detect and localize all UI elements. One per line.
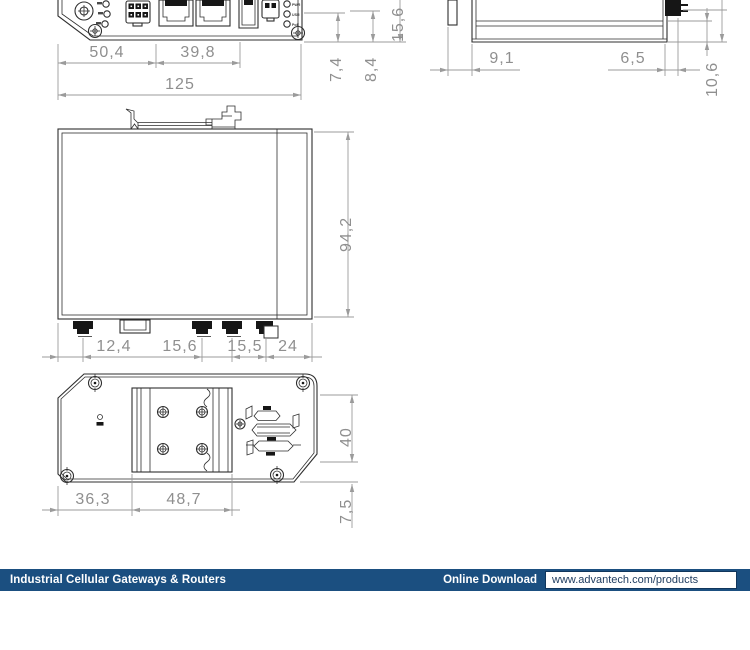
bracket-screw-4 xyxy=(197,444,208,455)
gland-top xyxy=(254,411,280,421)
dim-front-v1: 7,4 xyxy=(328,57,345,82)
bottom-molded-details xyxy=(235,406,301,456)
footer-url[interactable]: www.advantech.com/products xyxy=(546,574,698,586)
gland-mid xyxy=(252,424,296,436)
dim-front-v3: 15,6 xyxy=(390,7,407,42)
ethernet-port-2 xyxy=(196,0,230,26)
dim-side-height: 10,6 xyxy=(704,62,721,97)
din-spring-clip xyxy=(204,389,210,471)
catalog-page: PWR USR PoE 50,4 39,8 125 xyxy=(0,0,750,650)
dim-top-depth: 94,2 xyxy=(338,217,355,252)
bottom-outline-inner xyxy=(61,377,314,479)
small-screw xyxy=(235,419,245,429)
corner-screw-br xyxy=(271,466,284,484)
gland-bottom xyxy=(246,441,301,451)
footer-bar: Industrial Cellular Gateways & Routers O… xyxy=(0,569,750,591)
ethernet-port-1 xyxy=(159,0,193,26)
dim-top-c3: 15,5 xyxy=(227,338,262,355)
sma-connector-left xyxy=(75,2,93,20)
antenna-connector-4 xyxy=(256,321,278,338)
din-clip-plate xyxy=(448,0,457,25)
led-label-mark xyxy=(96,22,101,24)
din-clip-profile xyxy=(126,106,241,129)
panel-screw-right xyxy=(292,27,305,40)
grounding-point xyxy=(97,415,104,426)
footer-url-box[interactable]: www.advantech.com/products xyxy=(545,571,737,589)
panel-screw-left xyxy=(89,25,102,38)
dim-front-left: 50,4 xyxy=(89,44,124,61)
top-outline-inner xyxy=(62,133,307,315)
led-label-mark xyxy=(98,12,103,14)
side-view: 9,1 6,5 10,6 xyxy=(430,0,727,97)
antenna-connector-2 xyxy=(192,321,212,337)
bottom-outline xyxy=(58,374,317,482)
dim-front-mid: 39,8 xyxy=(180,44,215,61)
led-label-usr: USR xyxy=(292,13,300,17)
side-detail-lines xyxy=(472,0,667,39)
dim-bottom-edge: 7,5 xyxy=(338,499,355,524)
bracket-screw-3 xyxy=(158,444,169,455)
dim-top-c4: 24 xyxy=(278,338,298,355)
antenna-connector-1 xyxy=(73,321,93,337)
bracket-screw-1 xyxy=(158,407,169,418)
dimension-drawing: PWR USR PoE 50,4 39,8 125 xyxy=(0,0,750,562)
dim-front-total: 125 xyxy=(165,76,195,93)
antenna-connector-3 xyxy=(222,321,242,337)
dim-bottom-din-w: 48,7 xyxy=(166,491,201,508)
bracket-screw-2 xyxy=(197,407,208,418)
aux-connector xyxy=(262,0,279,21)
din-rail-bracket xyxy=(132,388,232,472)
dim-top-c2: 15,6 xyxy=(162,338,197,355)
led-cluster-right: PWR USR PoE xyxy=(284,1,301,27)
dim-side-clip: 9,1 xyxy=(489,50,514,67)
top-outline xyxy=(58,129,312,319)
footer-category-label: Industrial Cellular Gateways & Routers xyxy=(10,574,226,586)
dim-bottom-left: 36,3 xyxy=(75,491,110,508)
dim-front-v2: 8,4 xyxy=(363,57,380,82)
dim-bottom-din-h: 40 xyxy=(338,427,355,447)
dim-top-c1: 12,4 xyxy=(96,338,131,355)
power-connector xyxy=(126,1,150,26)
dim-side-right: 6,5 xyxy=(620,50,645,67)
side-rear-connector xyxy=(665,0,688,16)
top-view: 94,2 12,4 15,6 15,5 24 xyxy=(42,106,355,362)
sim-slot xyxy=(120,320,150,333)
led-cluster-left xyxy=(96,1,110,27)
led-label-pwr: PWR xyxy=(292,3,301,7)
din-clip-tab xyxy=(264,326,278,338)
side-view-dimensions: 9,1 6,5 10,6 xyxy=(430,0,727,97)
bottom-view: 40 7,5 36,3 48,7 xyxy=(42,374,358,528)
led-label-mark xyxy=(97,2,102,4)
usb-port xyxy=(239,0,258,28)
front-view: PWR USR PoE 50,4 39,8 125 xyxy=(58,0,407,100)
footer-download-label: Online Download xyxy=(443,574,537,586)
